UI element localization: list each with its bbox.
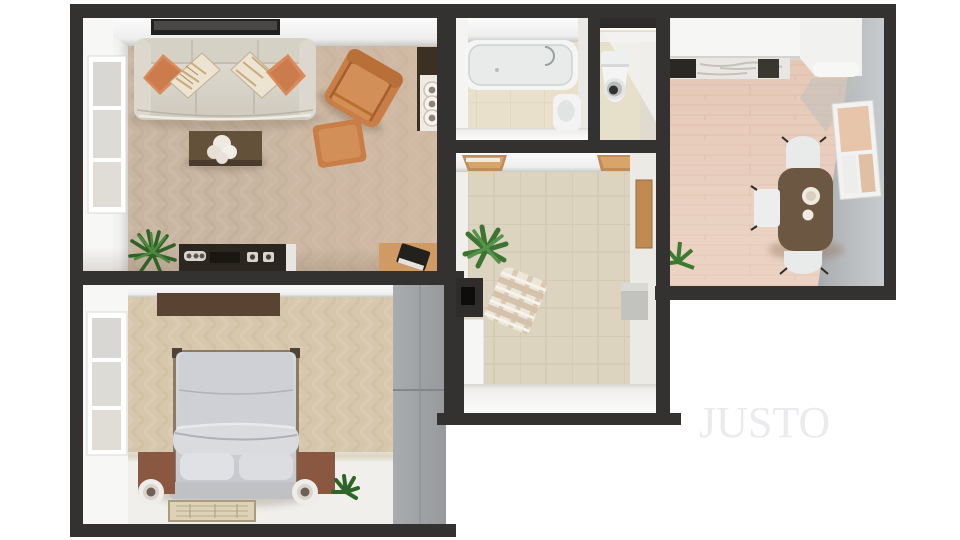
svg-text:JUSTO: JUSTO: [699, 398, 830, 447]
